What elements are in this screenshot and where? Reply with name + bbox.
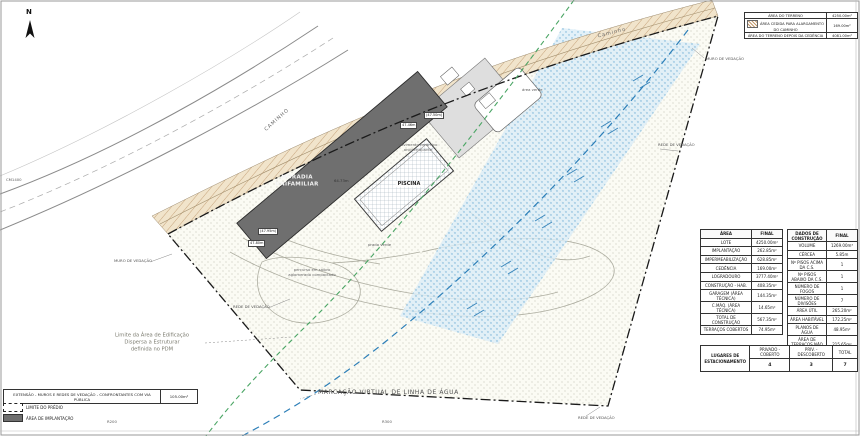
terrain-area-table: ÁREA DO TERRENO 4250.00m² ÁREA CEDIDA PA… [744,12,858,39]
cell-value: 408.35m² [752,281,783,290]
table-row: GARAGEM (ÁREA TÉCNICA)144.35m² [701,290,783,302]
table-cell-label: ÁREA DO TERRENO DEPOIS DA CEDÊNCIA [745,33,827,39]
table-row: Nº PISOS ABAIXO DA C.S.1 [788,271,858,283]
pavement-note-line2: antiderrapante [399,148,438,153]
cell-value: 5.85m [827,250,858,259]
parking-value: 7 [833,359,858,372]
pdm-note-line1: Limite da Área de Edificação [115,332,189,339]
building-label-line1: MORADIA [275,174,318,181]
table-row: ÁREA ÚTIL265.20m² [788,307,858,316]
pavement-note: pavimento cerâmico antiderrapante [399,143,438,153]
wall-label-1: MURO DE VEDAÇÃO [114,259,152,264]
cell-value: 1 [827,259,858,271]
cell-value: 1 [827,271,858,283]
parking-value: 3 [790,359,833,372]
cell-label: Nº PISOS ACIMA DA C.S. [788,259,827,271]
cell-value: 1269.00m³ [827,242,858,251]
cell-value: 172.25m² [827,315,858,324]
header-final: FINAL [827,230,858,242]
parking-col-header: PRIVADO - COBERTO [750,346,790,359]
legend: LIMITE DO PRÉDIO ÁREA DE IMPLANTAÇÃO [3,403,73,424]
cell-value: 3777.40m² [752,272,783,281]
implantation-fill-swatch-icon [3,414,23,422]
building-label: MORADIA UNIFAMILIAR [275,174,318,187]
cell-value: 48.95m² [827,324,858,336]
cell-value: 265.20m² [827,307,858,316]
fence-label-1: REDE DE VEDAÇÃO [233,305,270,310]
cell-label: Nº PISOS ABAIXO DA C.S. [788,271,827,283]
cell-value: 262.85m² [752,247,783,256]
table-row: CEDÊNCIA169.00m² [701,264,783,273]
pdm-note-line3: definida no PDM [115,347,189,354]
cell-label: TOTAL DE CONSTRUÇÃO [701,314,752,326]
legend-implantation-label: ÁREA DE IMPLANTAÇÃO [26,416,73,421]
cell-label: NÚMERO DE DIVISÕES [788,295,827,307]
cell-label: CÉRCEA [788,250,827,259]
parking-title: LUGARES DE ESTACIONAMENTO [701,346,750,372]
table-row: NÚMERO DE DIVISÕES7 [788,295,858,307]
cell-value: 567.35m² [752,314,783,326]
parking-title-line2: ESTACIONAMENTO [703,359,747,365]
table-cell-value: 169.00m² [827,19,858,33]
cell-label: TERRAÇOS COBERTOS [701,326,752,335]
cell-label: VOLUME [788,242,827,251]
site-plan-sheet: N CM1400 CAMINHO Caminho MURO DE VEDAÇÃO… [0,0,860,436]
parking-value: 4 [750,359,790,372]
north-arrow-icon [26,20,35,38]
lawn-note: prado verde [368,243,391,248]
header-construction: DADOS DE CONSTRUÇÃO [788,230,827,242]
path-note-line2: aglomerado compactado [288,273,335,278]
table-row: ÁREA HABITÁVEL172.25m² [788,315,858,324]
cell-label: IMPERMEABILIZAÇÃO [701,255,752,264]
wall-label-2: MURO DE VEDAÇÃO [706,57,744,62]
table-header-row: ÁREA FINAL [701,230,783,239]
legend-item-limit: LIMITE DO PRÉDIO [3,403,73,412]
path-note: percurso em saibro aglomerado compactado [288,268,335,278]
extension-value: 105.00m² [161,390,197,403]
legend-limit-label: LIMITE DO PRÉDIO [26,405,63,410]
header-area: ÁREA [701,230,752,239]
table-row: TOTAL DE CONSTRUÇÃO567.35m² [701,314,783,326]
cell-value: 4250.00m² [752,238,783,247]
pdm-note: Limite da Área de Edificação Dispersa a … [115,332,189,353]
table-row: CONSTRUÇÃO - HAB.408.35m² [701,281,783,290]
table-cell-label: ÁREA CEDIDA PARA ALARGAMENTO DO CAMINHO [745,19,827,33]
cell-value: 628.85m² [752,255,783,264]
cell-label: ÁREA HABITÁVEL [788,315,827,324]
cell-label: NÚMERO DE FOGOS [788,283,827,295]
water-line-label: MARCAÇÃO VIRTUAL DE LINHA DE ÁGUA [318,389,459,396]
pool-label: PISCINA [396,181,423,187]
parking-col-header: PRIV. - DESCOBERTO [790,346,833,359]
header-final: FINAL [752,230,783,239]
cell-value: 169.00m² [752,264,783,273]
cell-value: 144.35m² [752,290,783,302]
legend-item-implantation: ÁREA DE IMPLANTAÇÃO [3,414,73,422]
road-code-label: CM1400 [6,178,22,183]
table-row: IMPLANTAÇÃO262.85m² [701,247,783,256]
cell-label: IMPLANTAÇÃO [701,247,752,256]
pdm-note-line2: Dispersa a Estruturar [115,339,189,346]
cell-label: CEDÊNCIA [701,264,752,273]
area-table: ÁREA FINAL LOTE4250.00m² IMPLANTAÇÃO262.… [700,229,783,335]
cession-hatch-icon [747,20,758,28]
parking-col-header: TOTAL [833,346,858,359]
table-header-row: DADOS DE CONSTRUÇÃO FINAL [788,230,858,242]
elevation-marker: (47.95m) [258,228,278,235]
table-row: IMPERMEABILIZAÇÃO628.85m² [701,255,783,264]
cell-label: LOGRADOURO [701,272,752,281]
elevation-marker: (47.50m) [424,112,444,119]
dimension-label: 64.73m [334,179,349,184]
table-row: VOLUME1269.00m³ [788,242,858,251]
fence-label-2: REDE DE VEDAÇÃO [658,143,695,148]
table-row: C.MÁQ. (ÁREA TÉCNICA)14.65m² [701,302,783,314]
building-label-line2: UNIFAMILIAR [275,181,318,188]
cell-label: C.MÁQ. (ÁREA TÉCNICA) [701,302,752,314]
table-row: LOTE4250.00m² [701,238,783,247]
table-row: ÁREA CEDIDA PARA ALARGAMENTO DO CAMINHO … [745,19,858,33]
table-row: LOGRADOURO3777.40m² [701,272,783,281]
table-cell-label-text: ÁREA CEDIDA PARA ALARGAMENTO DO CAMINHO [760,22,824,32]
fence-label-3: REDE DE VEDAÇÃO [578,416,615,421]
table-row: CÉRCEA5.85m [788,250,858,259]
cell-label: PLANOS DE ÁGUA [788,324,827,336]
elevation-marker: 47.80m [248,240,265,247]
cell-label: GARAGEM (ÁREA TÉCNICA) [701,290,752,302]
green-area-note: área verde [522,88,543,93]
table-row: ÁREA DO TERRENO DEPOIS DA CEDÊNCIA 4081.… [745,33,858,39]
cell-value: 1 [827,283,858,295]
cell-label: LOTE [701,238,752,247]
north-label: N [26,8,32,16]
table-row: Nº PISOS ACIMA DA C.S.1 [788,259,858,271]
cell-label: CONSTRUÇÃO - HAB. [701,281,752,290]
construction-data-table: DADOS DE CONSTRUÇÃO FINAL VOLUME1269.00m… [787,229,858,353]
cell-label: ÁREA ÚTIL [788,307,827,316]
table-row: NÚMERO DE FOGOS1 [788,283,858,295]
tick-label-2: R300 [382,420,392,425]
table-row: PLANOS DE ÁGUA48.95m² [788,324,858,336]
cell-value: 7 [827,295,858,307]
cell-value: 74.95m² [752,326,783,335]
table-cell-value: 4081.00m² [827,33,858,39]
table-row: TERRAÇOS COBERTOS74.95m² [701,326,783,335]
extension-box: EXTENSÃO - MUROS E REDES DE VEDAÇÃO - CO… [3,389,198,404]
tick-label-1: R200 [107,420,117,425]
boundary-line-swatch-icon [3,403,23,412]
table-header-row: LUGARES DE ESTACIONAMENTO PRIVADO - COBE… [701,346,858,359]
extension-label: EXTENSÃO - MUROS E REDES DE VEDAÇÃO - CO… [4,390,161,403]
elevation-marker: 47.46m [400,122,417,129]
cell-value: 14.65m² [752,302,783,314]
parking-table: LUGARES DE ESTACIONAMENTO PRIVADO - COBE… [700,345,858,372]
